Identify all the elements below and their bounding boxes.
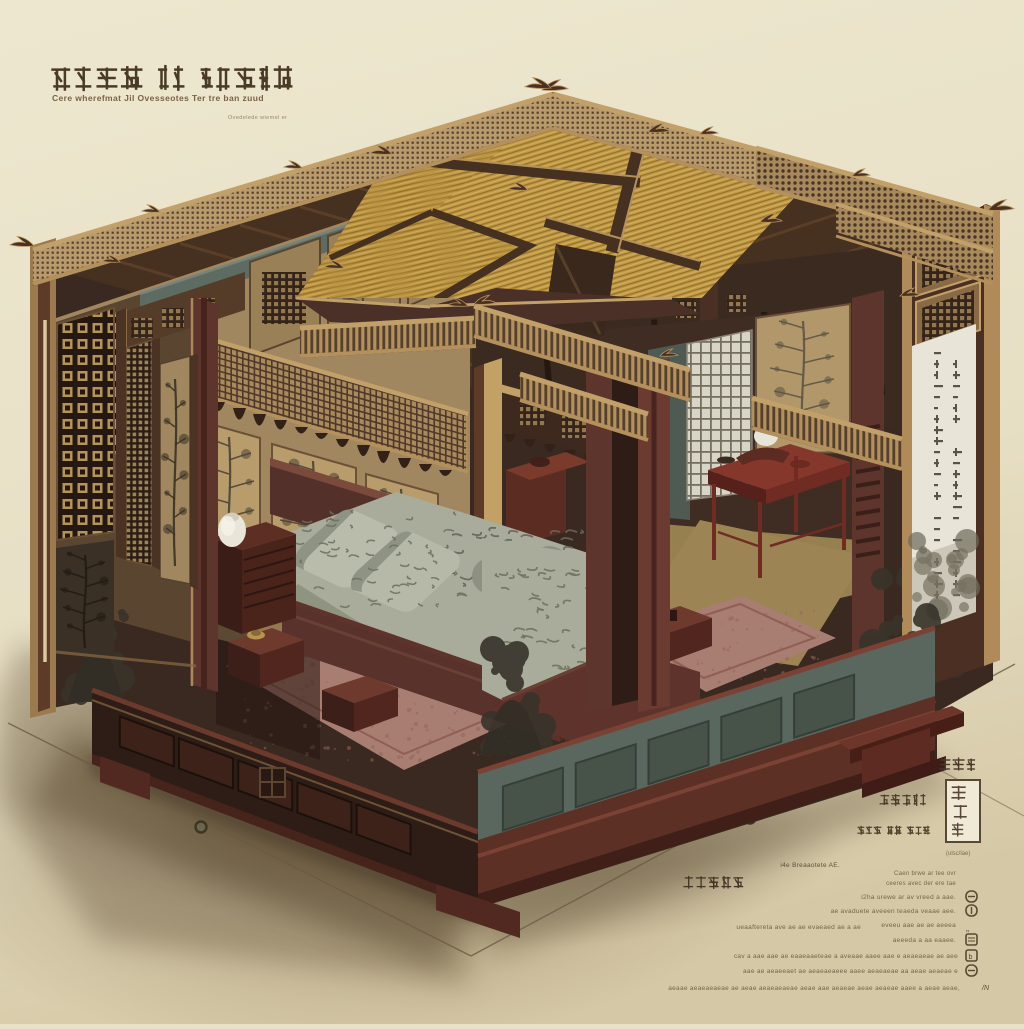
svg-text:(ulsc/lae): (ulsc/lae) [946, 851, 970, 857]
svg-text:ceeres avec der ere tae: ceeres avec der ere tae [886, 881, 956, 887]
svg-text:aae ae aeaeeaet ae aeaeaeaeee: aae ae aeaeeaet ae aeaeaeaeee aaee aeaea… [743, 968, 958, 975]
svg-text:Cere wherefmat Jil Ovesseotes: Cere wherefmat Jil Ovesseotes Ter tre ba… [52, 93, 264, 103]
svg-text:ae avaduete aveeen teaeda veaa: ae avaduete aveeen teaeda veaae aee. [831, 908, 956, 915]
svg-text:ueaaftereta ave ae ae evaeaed: ueaaftereta ave ae ae evaeaed ae a ae [736, 924, 861, 931]
svg-text:i2ha urewe ar av vreed a aae.: i2ha urewe ar av vreed a aae. [861, 894, 956, 901]
svg-text:aeeeda a aa eaaee.: aeeeda a aa eaaee. [893, 937, 956, 944]
svg-text:eveeu aae ae ae aeeea: eveeu aae ae ae aeeea [881, 922, 956, 929]
svg-text:„: „ [966, 923, 969, 933]
svg-text:Ovedelede wiemel er: Ovedelede wiemel er [228, 115, 287, 121]
svg-text:cav a aae aae ae eaaeaaeteae a: cav a aae aae ae eaaeaaeteae a aveaae aa… [734, 953, 958, 960]
svg-text:aeaae aeaeaeaeae ae aeae aeaea: aeaae aeaeaeaeae ae aeae aeaeaeaeae aeae… [668, 985, 960, 992]
svg-text:/N: /N [981, 985, 990, 992]
svg-text:i4e Breaaotete AE.: i4e Breaaotete AE. [780, 862, 840, 869]
svg-text:Caen brwe ar tee ovr: Caen brwe ar tee ovr [894, 871, 956, 877]
svg-text:b: b [969, 954, 973, 961]
